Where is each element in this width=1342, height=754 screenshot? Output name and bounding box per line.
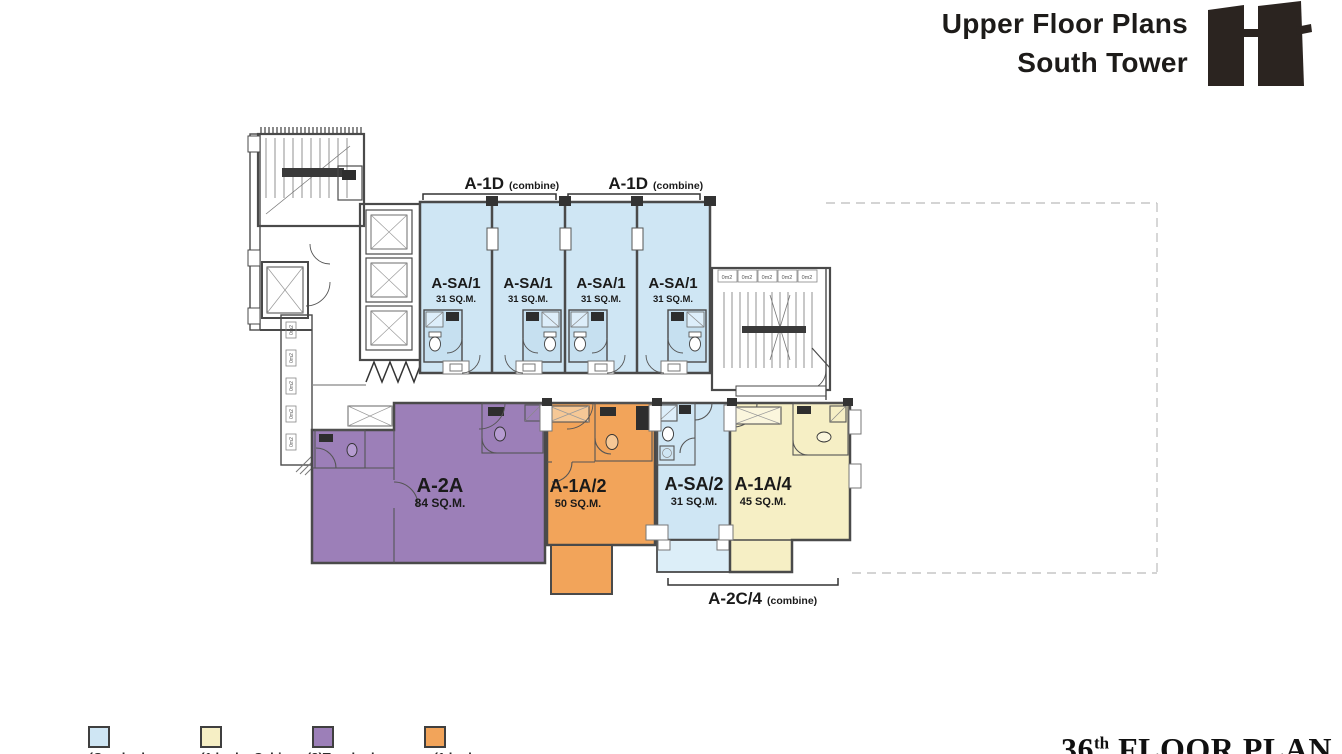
unit-area-asa1-1: 31 SQ.M. <box>436 294 476 305</box>
a1a2-balcony <box>551 545 612 594</box>
legend-swatch-orange <box>424 726 446 748</box>
unit-label-a1a2: A-1A/2 <box>549 476 606 496</box>
corridor-tags: 0m2 0m2 0m2 0m2 0m2 <box>289 325 295 447</box>
bathroom-pod <box>523 310 561 362</box>
unit-label-a1a4: A-1A/4 <box>734 474 791 494</box>
unit-label-asa1-4: A-SA/1 <box>648 275 697 292</box>
dashed-outline <box>826 203 1157 573</box>
svg-text:0m2: 0m2 <box>289 409 295 419</box>
unit-area-a2a: 84 SQ.M. <box>415 496 466 510</box>
unit-area-a1a4: 45 SQ.M. <box>740 496 786 508</box>
floor-plan-text: FLOOR PLAN <box>1118 731 1332 754</box>
bracket-note-a2c4: (combine) <box>767 595 817 607</box>
svg-text:0m2: 0m2 <box>289 325 295 335</box>
unit-area-asa1-4: 31 SQ.M. <box>653 294 693 305</box>
unit-area-asa2: 31 SQ.M. <box>671 496 717 508</box>
svg-text:0m2: 0m2 <box>722 275 733 281</box>
svg-text:0m2: 0m2 <box>289 353 295 363</box>
floor-plan-title: 36thFLOOR PLAN <box>1061 731 1332 754</box>
legend-caption: (1 bedroom <box>379 750 559 754</box>
unit-area-asa1-2: 31 SQ.M. <box>508 294 548 305</box>
unit-area-asa1-3: 31 SQ.M. <box>581 294 621 305</box>
legend: (One bedroom (1 bed + Cabin (2)Two bedro… <box>0 720 560 754</box>
core-right: 0m2 0m2 0m2 0m2 0m2 <box>712 268 830 400</box>
floor-plan: 0m2 0m2 0m2 0m2 0m2 <box>0 0 1342 754</box>
bracket-label-a1d-1: A-1D <box>464 174 504 193</box>
floor-number: 36 <box>1061 731 1094 754</box>
bracket-note-a1d-2: (combine) <box>653 180 703 192</box>
legend-swatch-purple <box>312 726 334 748</box>
svg-text:0m2: 0m2 <box>289 381 295 391</box>
unit-label-asa1-1: A-SA/1 <box>431 275 480 292</box>
legend-swatch-cream <box>200 726 222 748</box>
svg-text:0m2: 0m2 <box>742 275 753 281</box>
core-top-left <box>248 130 364 330</box>
svg-text:0m2: 0m2 <box>762 275 773 281</box>
legend-swatch-studio-blue <box>88 726 110 748</box>
shaft-hatch <box>366 362 420 382</box>
unit-label-asa1-3: A-SA/1 <box>576 275 625 292</box>
bathroom-pod <box>424 310 462 362</box>
svg-text:0m2: 0m2 <box>802 275 813 281</box>
corridor-strip-left: 0m2 0m2 0m2 0m2 0m2 <box>281 315 315 475</box>
unit-label-asa2: A-SA/2 <box>664 474 723 494</box>
unit-label-asa1-2: A-SA/1 <box>503 275 552 292</box>
elevator-left <box>262 262 308 318</box>
svg-text:0m2: 0m2 <box>782 275 793 281</box>
bracket-label-a1d-2: A-1D <box>608 174 648 193</box>
elevator-bank <box>312 204 420 385</box>
a2a-wardrobe <box>348 406 392 426</box>
svg-text:0m2: 0m2 <box>289 437 295 447</box>
bathroom-pod <box>569 310 607 362</box>
floor-ordinal: th <box>1094 733 1109 752</box>
unit-area-a1a2: 50 SQ.M. <box>555 498 601 510</box>
unit-label-a2a: A-2A <box>417 475 464 497</box>
bracket-label-a2c4: A-2C/4 <box>708 589 762 608</box>
bracket-note-a1d-1: (combine) <box>509 180 559 192</box>
bathroom-pod <box>668 310 706 362</box>
